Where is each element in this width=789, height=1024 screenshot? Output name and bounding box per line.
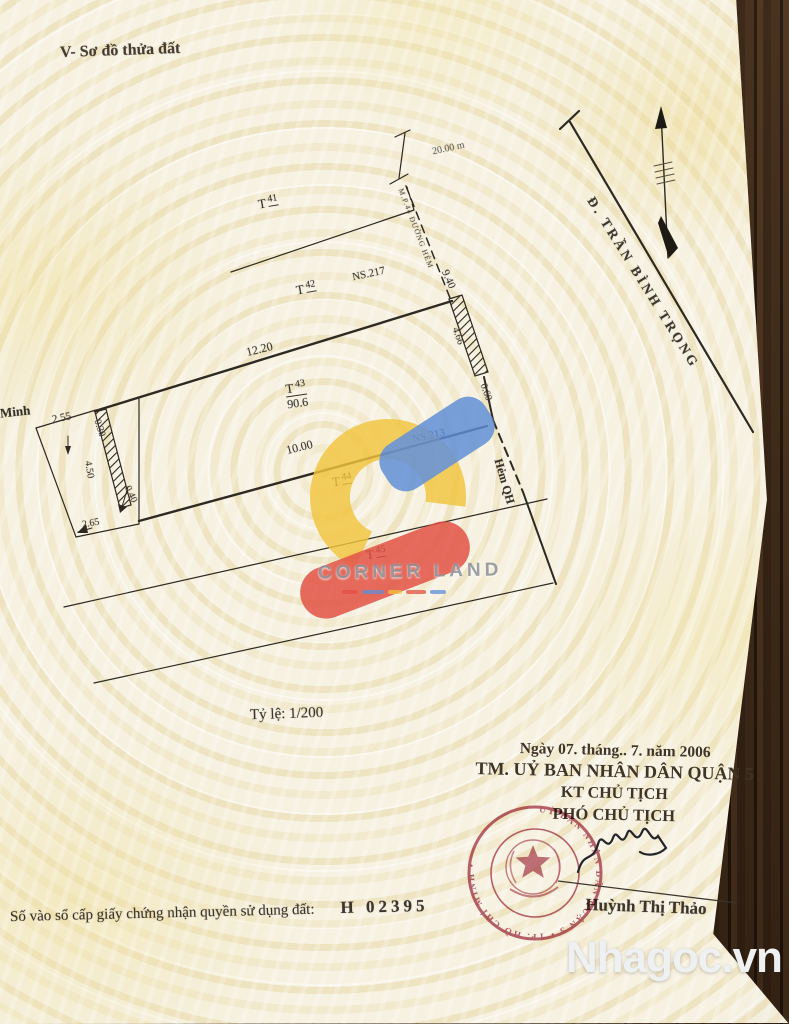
signature-mark [0,0,789,1024]
photo-of-land-certificate: V- Sơ đồ thửa đất Đ. TRẦN BÌNH TRỌNG M.P… [0,0,789,1024]
nhagoc-watermark: Nhagoc.vn [566,933,782,983]
